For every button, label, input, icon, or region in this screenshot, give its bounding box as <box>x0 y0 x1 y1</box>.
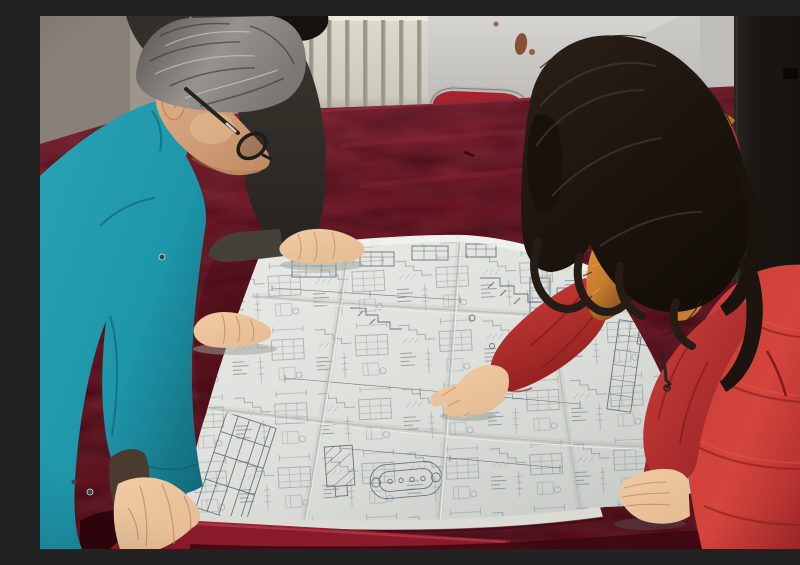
photo-canvas <box>40 16 800 549</box>
photograph-blueprint-review: Photograph: a gray-haired man in a teal … <box>40 16 800 549</box>
photo-vignette <box>40 16 800 549</box>
